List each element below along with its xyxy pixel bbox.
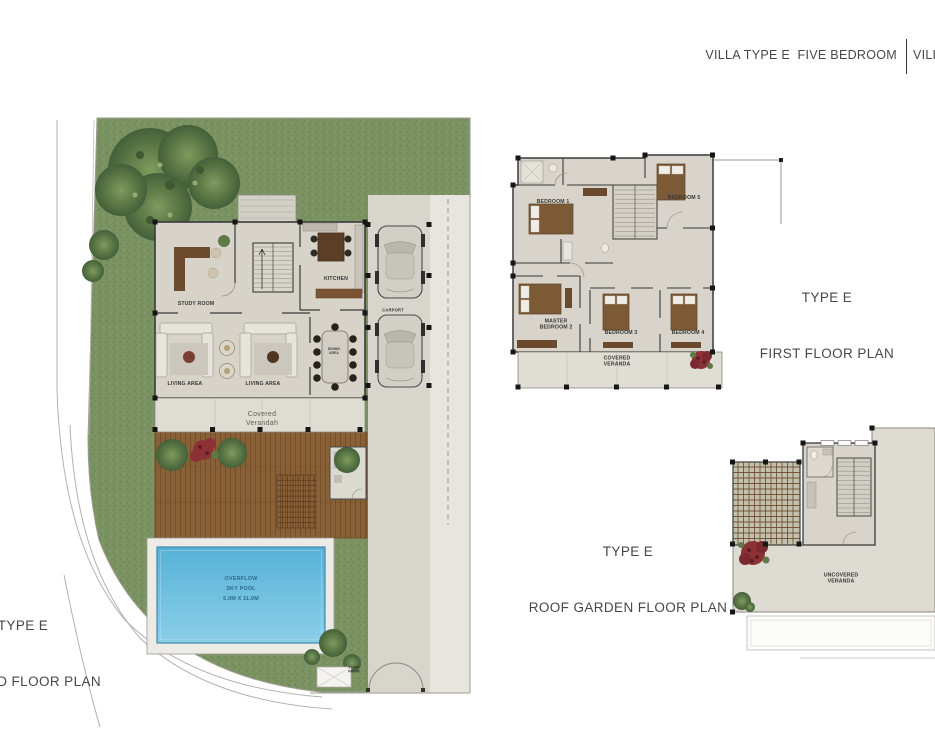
label-bedroom4: BEDROOM 4 xyxy=(672,330,705,336)
ground-floor-title-name: GROUND FLOOR PLAN xyxy=(0,673,101,692)
entry-portico xyxy=(238,195,296,223)
label-bedroom3: BEDROOM 3 xyxy=(605,330,638,336)
label-uncovered-veranda: UNCOVERED VERANDA xyxy=(824,573,859,586)
roof-garden-title: TYPE E ROOF GARDEN FLOOR PLAN xyxy=(529,506,728,654)
first-floor-title: TYPE E FIRST FLOOR PLAN xyxy=(760,252,894,400)
brochure-page: STUDY ROOM KITCHEN LIVING AREA LIVING AR… xyxy=(0,0,935,735)
red-plant xyxy=(690,351,713,369)
first-floor-title-name: FIRST FLOOR PLAN xyxy=(760,345,894,364)
ground-floor-title: TYPE E GROUND FLOOR PLAN xyxy=(0,580,101,728)
label-master-bedroom2: MASTER BEDROOM 2 xyxy=(540,319,573,332)
label-covered-verandah: Covered Verandah xyxy=(246,410,278,428)
roof-garden-title-name: ROOF GARDEN FLOOR PLAN xyxy=(529,599,728,618)
header-current-villa: VILLA TYPE E FIVE BEDROOM xyxy=(705,48,897,62)
label-covered-veranda: COVERED VERANDA xyxy=(604,356,631,369)
pergola xyxy=(733,462,800,545)
label-pump-room: PUMP ROOM xyxy=(348,666,360,675)
roof-garden-plan xyxy=(725,420,935,682)
staircase xyxy=(253,243,293,292)
label-bedroom5: BEDROOM 5 xyxy=(668,195,701,201)
label-pool: OVERFLOW SKY POOL 5.0M X 11.0M xyxy=(223,574,259,604)
label-carport: CARPORT xyxy=(382,307,404,312)
label-living-area-right: LIVING AREA xyxy=(246,381,281,387)
label-kitchen: KITCHEN xyxy=(324,276,348,282)
header-divider xyxy=(906,39,907,74)
first-floor-title-type: TYPE E xyxy=(760,289,894,308)
balcony-outline xyxy=(713,160,781,224)
header-next-villa: VILLA xyxy=(913,48,935,62)
staircase xyxy=(613,185,657,239)
roof-garden-title-type: TYPE E xyxy=(529,543,728,562)
label-study-room: STUDY ROOM xyxy=(178,301,215,307)
ground-floor-title-type: TYPE E xyxy=(0,617,101,636)
terrace-band xyxy=(747,616,935,658)
house xyxy=(155,222,365,398)
label-living-area-left: LIVING AREA xyxy=(168,381,203,387)
stair-room xyxy=(803,441,875,546)
label-dining-area: DINING AREA xyxy=(328,347,340,355)
first-floor-plan xyxy=(505,148,795,398)
label-bedroom1: BEDROOM 1 xyxy=(537,199,570,205)
